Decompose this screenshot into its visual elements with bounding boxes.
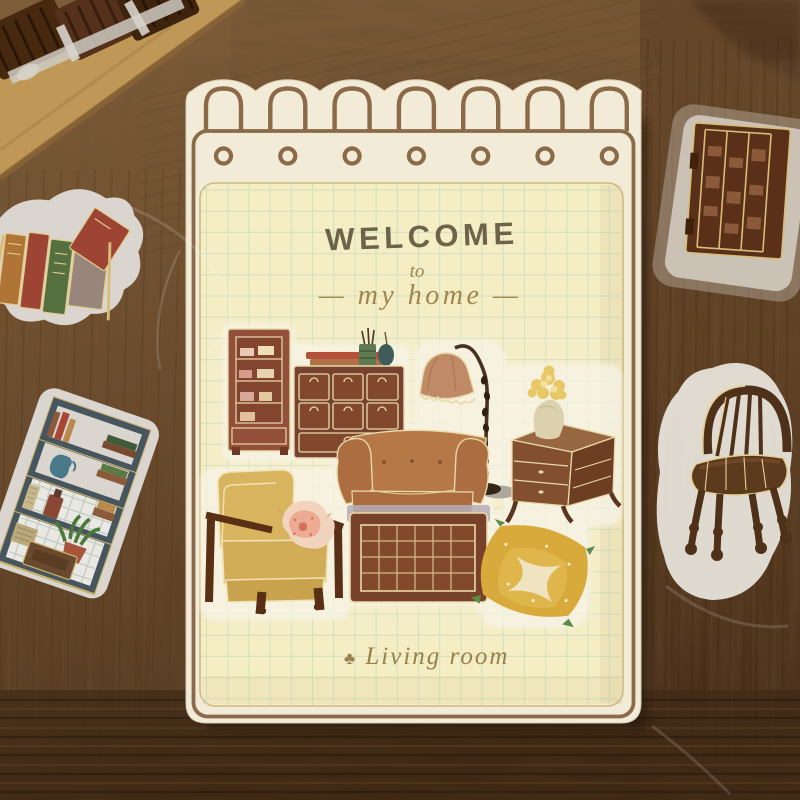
svg-text:♣ Living room: ♣ Living room bbox=[344, 643, 509, 670]
svg-text:— my home —: — my home — bbox=[318, 280, 522, 311]
svg-text:WELCOME: WELCOME bbox=[325, 216, 519, 258]
svg-text:to: to bbox=[410, 261, 425, 282]
